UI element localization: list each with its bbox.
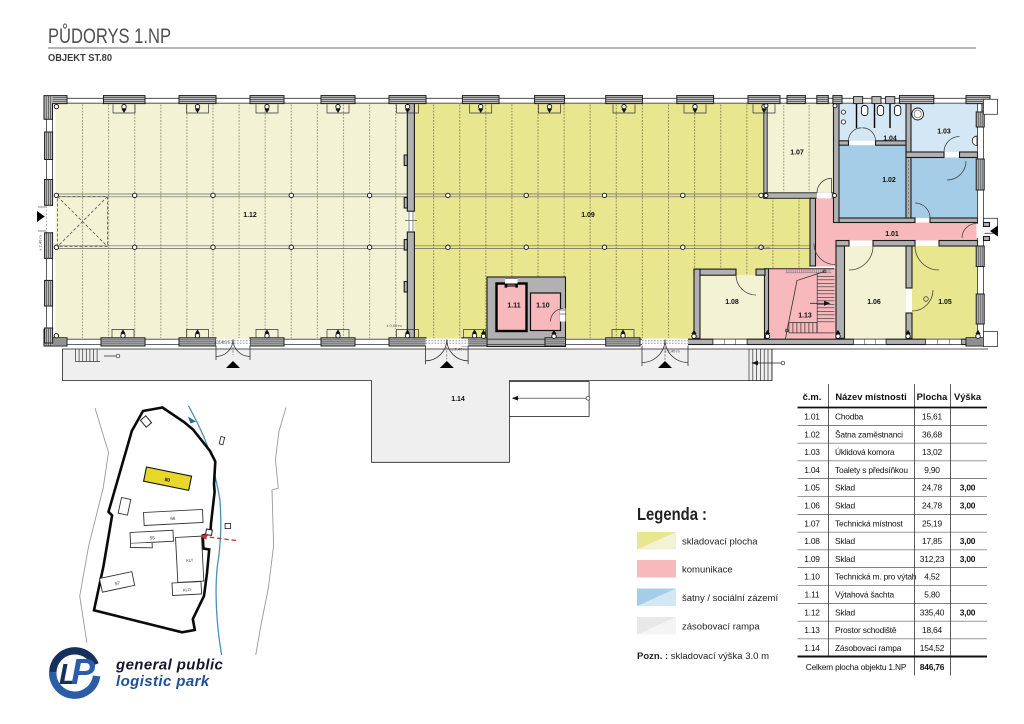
- svg-text:Sklad: Sklad: [835, 536, 855, 546]
- svg-text:Toalety s předsíňkou: Toalety s předsíňkou: [835, 465, 908, 475]
- svg-text:25,19: 25,19: [922, 518, 943, 528]
- svg-text:Sklad: Sklad: [835, 501, 855, 511]
- svg-text:Šatna zaměstnanci: Šatna zaměstnanci: [835, 429, 903, 439]
- svg-text:18,64: 18,64: [922, 625, 943, 635]
- svg-text:1.05: 1.05: [804, 483, 820, 493]
- svg-text:Celkem plocha objektu 1.NP: Celkem plocha objektu 1.NP: [806, 662, 907, 672]
- svg-text:1.03: 1.03: [804, 447, 820, 457]
- svg-text:1.06: 1.06: [867, 299, 881, 306]
- svg-text:± 2,40 m: ± 2,40 m: [38, 235, 43, 251]
- svg-text:4,52: 4,52: [924, 572, 940, 582]
- svg-text:P: P: [71, 651, 96, 692]
- svg-text:1.06: 1.06: [804, 501, 820, 511]
- svg-text:Výtahová šachta: Výtahová šachta: [835, 590, 894, 600]
- svg-text:1.07: 1.07: [790, 150, 804, 157]
- svg-text:Pozn. : skladovací výška 3.0 m: Pozn. : skladovací výška 3.0 m: [637, 651, 769, 662]
- svg-text:1.04: 1.04: [804, 465, 820, 475]
- svg-text:1.14: 1.14: [804, 643, 820, 653]
- svg-text:335,40: 335,40: [920, 607, 945, 617]
- svg-text:1.11: 1.11: [507, 302, 520, 309]
- svg-text:5,80: 5,80: [924, 590, 940, 600]
- svg-text:Zásobovací rampa: Zásobovací rampa: [835, 643, 902, 653]
- svg-text:skladovací plocha: skladovací plocha: [682, 537, 758, 548]
- svg-text:1.08: 1.08: [804, 536, 820, 546]
- svg-text:Plocha: Plocha: [917, 391, 949, 402]
- svg-text:Sklad: Sklad: [835, 483, 855, 493]
- svg-text:Výška: Výška: [954, 391, 982, 402]
- svg-text:Sklad: Sklad: [835, 554, 855, 564]
- svg-text:1.02: 1.02: [882, 177, 896, 184]
- svg-text:Chodba: Chodba: [835, 412, 864, 422]
- svg-text:Legenda :: Legenda :: [637, 504, 707, 524]
- svg-text:15,61: 15,61: [922, 412, 943, 422]
- svg-text:36,68: 36,68: [922, 429, 943, 439]
- svg-text:± 0,00 m: ± 0,00 m: [386, 323, 402, 328]
- svg-text:1.14: 1.14: [451, 396, 465, 403]
- svg-text:9,90: 9,90: [924, 465, 940, 475]
- svg-text:1.07: 1.07: [804, 518, 820, 528]
- svg-text:13,02: 13,02: [922, 447, 943, 457]
- svg-text:312,23: 312,23: [920, 554, 945, 564]
- svg-text:KLO: KLO: [183, 587, 191, 592]
- svg-text:komunikace: komunikace: [682, 565, 733, 576]
- svg-text:1.01: 1.01: [885, 231, 899, 238]
- svg-text:3,00: 3,00: [960, 501, 976, 511]
- svg-text:Název místnosti: Název místnosti: [835, 391, 906, 402]
- svg-text:zásobovací rampa: zásobovací rampa: [682, 622, 760, 633]
- svg-text:1.03: 1.03: [937, 129, 951, 136]
- svg-text:1.10: 1.10: [536, 302, 550, 309]
- svg-text:1.13: 1.13: [798, 313, 812, 320]
- svg-text:Technická místnost: Technická místnost: [835, 518, 903, 528]
- svg-text:24,78: 24,78: [922, 501, 943, 511]
- svg-text:3,00: 3,00: [960, 607, 976, 617]
- svg-text:1.12: 1.12: [804, 607, 820, 617]
- svg-text:OBJEKT ST.80: OBJEKT ST.80: [48, 52, 112, 64]
- svg-text:1.02: 1.02: [804, 429, 820, 439]
- svg-text:1.09: 1.09: [804, 554, 820, 564]
- svg-text:č.m.: č.m.: [803, 391, 822, 402]
- svg-text:3,00: 3,00: [960, 536, 976, 546]
- svg-text:± 2,40 m: ± 2,40 m: [214, 340, 230, 345]
- svg-text:1.12: 1.12: [243, 212, 257, 219]
- svg-text:Úklidová komora: Úklidová komora: [835, 447, 895, 457]
- svg-text:1.04: 1.04: [883, 136, 897, 143]
- svg-text:PŮDORYS 1.NP: PŮDORYS 1.NP: [48, 24, 171, 48]
- svg-text:66: 66: [170, 516, 176, 521]
- svg-text:1.01: 1.01: [804, 412, 820, 422]
- svg-text:± 0,00 m: ± 0,00 m: [754, 245, 770, 250]
- svg-text:1.05: 1.05: [938, 299, 952, 306]
- svg-text:1.08: 1.08: [725, 299, 739, 306]
- svg-text:846,76: 846,76: [920, 662, 945, 672]
- svg-text:general public: general public: [115, 657, 224, 674]
- svg-text:šatny / sociální zázemí: šatny / sociální zázemí: [682, 593, 778, 604]
- svg-text:± 2,40 m: ± 2,40 m: [664, 349, 680, 354]
- svg-text:1.13: 1.13: [804, 625, 820, 635]
- svg-text:24,78: 24,78: [922, 483, 943, 493]
- svg-text:logistic park: logistic park: [116, 673, 210, 690]
- svg-text:1.10: 1.10: [804, 572, 820, 582]
- svg-text:3,00: 3,00: [960, 483, 976, 493]
- svg-text:Prostor schodiště: Prostor schodiště: [835, 625, 897, 635]
- svg-text:Sklad: Sklad: [835, 607, 855, 617]
- svg-text:1.11: 1.11: [805, 590, 820, 600]
- svg-text:17,85: 17,85: [922, 536, 943, 546]
- svg-text:± 2,40 m: ± 2,40 m: [451, 347, 467, 352]
- svg-text:154,52: 154,52: [920, 643, 945, 653]
- svg-text:KLT: KLT: [186, 558, 194, 563]
- svg-text:3,00: 3,00: [960, 554, 976, 564]
- svg-text:55: 55: [150, 535, 156, 540]
- svg-text:Technická m. pro výtah: Technická m. pro výtah: [835, 572, 917, 582]
- svg-text:1.09: 1.09: [581, 212, 595, 219]
